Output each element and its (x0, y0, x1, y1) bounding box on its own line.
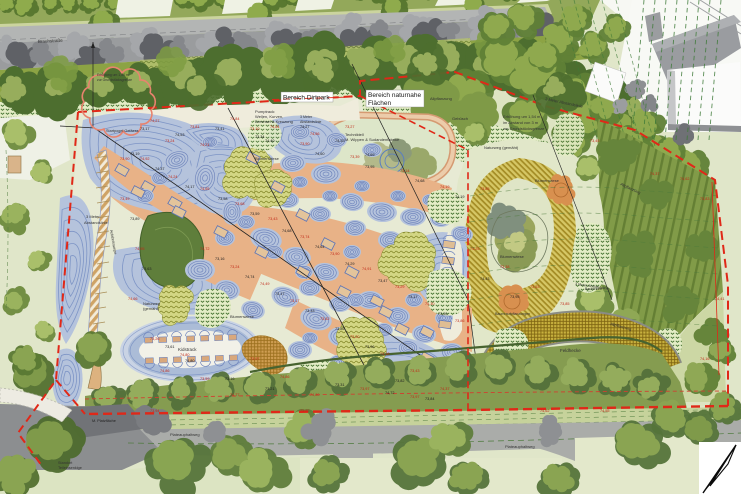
svg-text:73,96: 73,96 (365, 345, 375, 349)
svg-text:73,94: 73,94 (150, 409, 160, 413)
svg-text:74,33: 74,33 (335, 139, 345, 143)
svg-text:73,90: 73,90 (330, 252, 340, 256)
svg-text:74,62: 74,62 (680, 177, 690, 181)
svg-text:73,97: 73,97 (360, 387, 370, 391)
svg-text:73,34: 73,34 (255, 135, 265, 139)
svg-text:Feldhecke: Feldhecke (560, 348, 581, 353)
svg-text:74,49: 74,49 (260, 282, 270, 286)
svg-text:74,60: 74,60 (315, 152, 325, 156)
svg-text:74,43: 74,43 (480, 277, 490, 281)
svg-text:73,63: 73,63 (142, 267, 152, 271)
svg-text:74,27: 74,27 (300, 125, 310, 129)
svg-text:74,24: 74,24 (168, 175, 178, 179)
svg-text:73,24: 73,24 (165, 139, 175, 143)
svg-text:73,49: 73,49 (120, 197, 130, 201)
svg-text:74,91: 74,91 (362, 267, 372, 271)
svg-text:Bereich naturnahe: Bereich naturnahe (368, 92, 422, 99)
svg-text:73,16: 73,16 (215, 257, 225, 261)
svg-text:74,62: 74,62 (540, 409, 550, 413)
svg-text:Standort: Standort (58, 461, 73, 465)
svg-text:73,97: 73,97 (250, 357, 260, 361)
svg-text:74,72: 74,72 (200, 247, 210, 251)
svg-text:74,19: 74,19 (455, 195, 465, 199)
svg-text:74,40: 74,40 (265, 139, 275, 143)
svg-text:73,29: 73,29 (395, 285, 405, 289)
svg-text:Gebüsch: Gebüsch (452, 116, 468, 121)
svg-text:74,37: 74,37 (155, 167, 165, 171)
svg-text:73,86: 73,86 (455, 319, 465, 323)
svg-text:73,95: 73,95 (365, 165, 375, 169)
svg-text:73,19: 73,19 (130, 152, 140, 156)
svg-text:73,41: 73,41 (215, 127, 225, 131)
svg-text:74,65: 74,65 (200, 187, 210, 191)
svg-text:Blumenwiese: Blumenwiese (500, 254, 525, 259)
svg-text:Naturweg (gemäht): Naturweg (gemäht) (484, 145, 519, 150)
svg-text:74,53: 74,53 (175, 133, 185, 137)
svg-text:74,68: 74,68 (415, 179, 425, 183)
svg-text:73,86: 73,86 (335, 327, 345, 331)
svg-text:Bereich Dirtpark: Bereich Dirtpark (283, 95, 330, 102)
svg-text:Blumenwiese: Blumenwiese (255, 156, 280, 161)
svg-text:73,43: 73,43 (268, 217, 278, 221)
svg-text:73,90: 73,90 (120, 157, 130, 161)
svg-text:73,59: 73,59 (200, 377, 210, 381)
svg-text:74,69: 74,69 (365, 153, 375, 157)
svg-text:73,47: 73,47 (378, 279, 388, 283)
svg-text:74,37: 74,37 (440, 387, 450, 391)
svg-text:74,86: 74,86 (160, 369, 170, 373)
svg-text:73,82: 73,82 (320, 317, 330, 321)
svg-text:73,21: 73,21 (265, 387, 275, 391)
svg-text:73,17: 73,17 (275, 292, 285, 296)
svg-text:73,27: 73,27 (345, 125, 355, 129)
svg-text:74,66: 74,66 (128, 297, 138, 301)
svg-text:Baumraufpflanzungen: Baumraufpflanzungen (495, 312, 530, 316)
svg-text:M. Platzfläche: M. Platzfläche (92, 419, 116, 423)
svg-text:73,82: 73,82 (395, 379, 405, 383)
svg-text:73,84: 73,84 (425, 397, 435, 401)
svg-text:74,27: 74,27 (150, 119, 160, 123)
svg-text:Blumenwiese: Blumenwiese (535, 178, 560, 183)
svg-text:Erhöhung um 1,54 m: Erhöhung um 1,54 m (503, 114, 541, 119)
svg-text:73,89: 73,89 (130, 217, 140, 221)
svg-text:73,68: 73,68 (235, 202, 245, 206)
svg-text:Flächen: Flächen (368, 100, 392, 107)
svg-text:73,90: 73,90 (300, 142, 310, 146)
svg-text:73,53: 73,53 (530, 285, 540, 289)
svg-text:73,17: 73,17 (408, 295, 418, 299)
svg-text:73,33: 73,33 (305, 309, 315, 313)
svg-text:(gemäht): (gemäht) (143, 306, 160, 311)
svg-text:74,19: 74,19 (440, 185, 450, 189)
svg-text:73,39: 73,39 (350, 155, 360, 159)
svg-text:74,84: 74,84 (230, 117, 240, 121)
svg-text:M. Wippen & Sudandenfabrike: M. Wippen & Sudandenfabrike (345, 137, 400, 142)
svg-text:73,61: 73,61 (165, 345, 175, 349)
svg-text:73,58: 73,58 (218, 197, 228, 201)
svg-text:Allpflanzung: Allpflanzung (430, 96, 452, 101)
svg-text:Abstandslinie: Abstandslinie (84, 220, 109, 225)
svg-text:73,74: 73,74 (300, 235, 310, 239)
svg-text:73,45: 73,45 (590, 139, 600, 143)
svg-text:74,18: 74,18 (380, 352, 390, 356)
svg-text:Drechsel & Kreuzung: Drechsel & Kreuzung (255, 119, 293, 124)
svg-text:73,38: 73,38 (500, 265, 510, 269)
svg-text:Plateauphaltweg: Plateauphaltweg (505, 444, 535, 449)
svg-text:74,92: 74,92 (140, 157, 150, 161)
svg-text:74,68: 74,68 (282, 229, 292, 233)
svg-text:73,17: 73,17 (140, 127, 150, 131)
svg-text:73,85: 73,85 (480, 187, 490, 191)
svg-text:Plateauphaltweg: Plateauphaltweg (170, 432, 200, 437)
svg-text:73,83: 73,83 (700, 197, 710, 201)
svg-text:Abstandslinie: Abstandslinie (300, 120, 321, 124)
svg-text:74,64: 74,64 (315, 245, 325, 249)
svg-text:73,26: 73,26 (150, 337, 160, 341)
svg-text:73,17: 73,17 (290, 299, 300, 303)
svg-text:zur Grundstücksgrenze: zur Grundstücksgrenze (503, 126, 545, 131)
svg-text:73,43: 73,43 (410, 369, 420, 373)
svg-text:Startpogel Gefäess: Startpogel Gefäess (106, 129, 139, 133)
svg-text:73,95: 73,95 (510, 295, 520, 299)
svg-text:Blumenwiese: Blumenwiese (230, 314, 255, 319)
svg-text:73,16: 73,16 (225, 377, 235, 381)
svg-text:74,16: 74,16 (700, 357, 710, 361)
svg-text:Erhöhung um 1,54 m: Erhöhung um 1,54 m (97, 73, 129, 77)
svg-text:74,21: 74,21 (200, 143, 210, 147)
svg-text:74,80: 74,80 (185, 359, 195, 363)
svg-text:73,24: 73,24 (230, 265, 240, 269)
svg-text:73,50: 73,50 (438, 312, 448, 316)
svg-text:74,17: 74,17 (185, 185, 195, 189)
svg-text:Teileinsenkige: Teileinsenkige (58, 466, 82, 470)
svg-text:74,95: 74,95 (135, 247, 145, 251)
svg-text:zur Grundstücksgrenze: zur Grundstücksgrenze (97, 78, 132, 82)
svg-text:74,30: 74,30 (425, 302, 435, 306)
svg-text:74,55: 74,55 (600, 409, 610, 413)
svg-text:73,22: 73,22 (300, 409, 310, 413)
svg-text:74,74: 74,74 (245, 275, 255, 279)
svg-text:74,84: 74,84 (270, 125, 280, 129)
svg-text:74,72: 74,72 (385, 391, 395, 395)
svg-text:74,86: 74,86 (280, 375, 290, 379)
svg-text:74,56: 74,56 (310, 132, 320, 136)
svg-text:3 Meter: 3 Meter (86, 214, 100, 219)
svg-text:73,31: 73,31 (335, 383, 345, 387)
svg-text:74,80: 74,80 (310, 393, 320, 397)
svg-text:74,77: 74,77 (230, 393, 240, 397)
svg-text:74,37: 74,37 (650, 172, 660, 176)
svg-text:74,25: 74,25 (470, 247, 480, 251)
svg-text:73,10: 73,10 (250, 127, 260, 131)
svg-text:74,80: 74,80 (180, 353, 190, 357)
svg-text:74,29: 74,29 (345, 262, 355, 266)
svg-text:Kidstrack: Kidstrack (178, 347, 197, 352)
svg-text:73,97: 73,97 (410, 395, 420, 399)
svg-text:im Abstand von 3 m: im Abstand von 3 m (503, 120, 539, 125)
svg-text:73,85: 73,85 (560, 302, 570, 306)
svg-text:74,41: 74,41 (715, 297, 725, 301)
svg-text:73,81: 73,81 (190, 125, 200, 129)
svg-text:73,14: 73,14 (400, 169, 410, 173)
svg-text:73,59: 73,59 (250, 212, 260, 216)
svg-text:3 Meter: 3 Meter (300, 115, 313, 119)
svg-text:73,20: 73,20 (350, 335, 360, 339)
